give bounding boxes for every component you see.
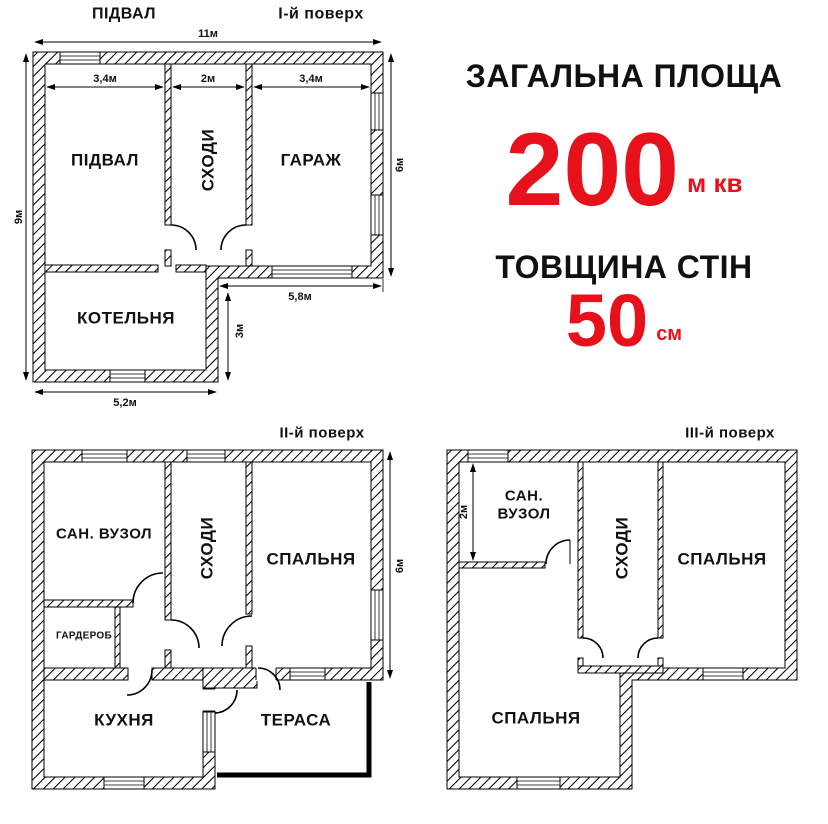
- plan1-outer-walls: [33, 52, 383, 382]
- room-label-bathroom-3-line1: САН.: [505, 488, 543, 505]
- plan2-windows: [82, 450, 383, 789]
- plan2-second-floor: ІІ-й поверх: [32, 425, 406, 790]
- dim-bottom-right-width: 5,8м: [288, 291, 311, 303]
- total-area-label: ЗАГАЛЬНА ПЛОЩА: [420, 58, 828, 95]
- room-label-boiler: КОТЕЛЬНЯ: [77, 309, 175, 328]
- info-block: ЗАГАЛЬНА ПЛОЩА 200 м кв ТОВЩИНА СТІН 50 …: [420, 58, 828, 356]
- room-label-bedroom-bottom: СПАЛЬНЯ: [491, 709, 580, 728]
- wall-thickness-unit: см: [656, 323, 682, 346]
- room-label-bathroom-2: САН. ВУЗОЛ: [56, 526, 152, 543]
- dim-ext-width: 5,2м: [113, 397, 136, 409]
- room-label-bathroom-3-line2: ВУЗОЛ: [497, 506, 550, 523]
- room-label-stairs-3: СХОДИ: [613, 517, 632, 579]
- dim-left-height: 9м: [13, 210, 25, 224]
- plan3-title: ІІІ-й поверх: [685, 425, 775, 442]
- dim-ext-height: 3м: [234, 324, 246, 338]
- room-label-bedroom-2: СПАЛЬНЯ: [266, 550, 355, 569]
- floor-plan-poster: ПІДВАЛ І-й поверх: [0, 0, 828, 824]
- total-area-unit: м кв: [687, 168, 742, 199]
- plan1-windows: [60, 52, 383, 382]
- plan3-outer-walls: [447, 450, 797, 789]
- room-label-wardrobe: ГАРДЕРОБ: [56, 631, 112, 642]
- dim-plan3-bathroom-height: 2м: [458, 505, 470, 519]
- room-label-stairs-2: СХОДИ: [198, 517, 217, 579]
- wall-thickness-value: 50: [566, 286, 648, 356]
- plan3-partitions: [459, 462, 663, 673]
- dim-plan2-right-height: 6м: [394, 559, 406, 573]
- dim-basement-width: 3,4м: [93, 73, 116, 85]
- plan3-door-arcs: [546, 540, 658, 658]
- plan1-door-arcs: [171, 225, 246, 250]
- total-area-value-row: 200 м кв: [420, 123, 828, 219]
- room-label-basement: ПІДВАЛ: [71, 151, 139, 170]
- plan1-title-right: І-й поверх: [278, 6, 363, 23]
- plan2-title: ІІ-й поверх: [279, 425, 364, 442]
- dim-total-width: 11м: [198, 28, 218, 40]
- plan1-title-left: ПІДВАЛ: [92, 6, 156, 23]
- dim-right-height: 6м: [394, 158, 406, 172]
- room-label-bedroom-right: СПАЛЬНЯ: [677, 550, 766, 569]
- room-label-stairs-1: СХОДИ: [199, 129, 218, 191]
- room-label-terrace: ТЕРАСА: [261, 711, 332, 730]
- dim-garage-width: 3,4м: [299, 73, 322, 85]
- total-area-value: 200: [506, 123, 680, 219]
- room-label-kitchen: КУХНЯ: [94, 711, 154, 730]
- wall-thickness-value-row: 50 см: [420, 286, 828, 356]
- plan3-third-floor: ІІІ-й поверх: [447, 425, 797, 790]
- plan1-basement-first-floor: ПІДВАЛ І-й поверх: [13, 6, 406, 410]
- room-label-garage: ГАРАЖ: [281, 151, 342, 170]
- dim-stairs-width: 2м: [201, 73, 215, 85]
